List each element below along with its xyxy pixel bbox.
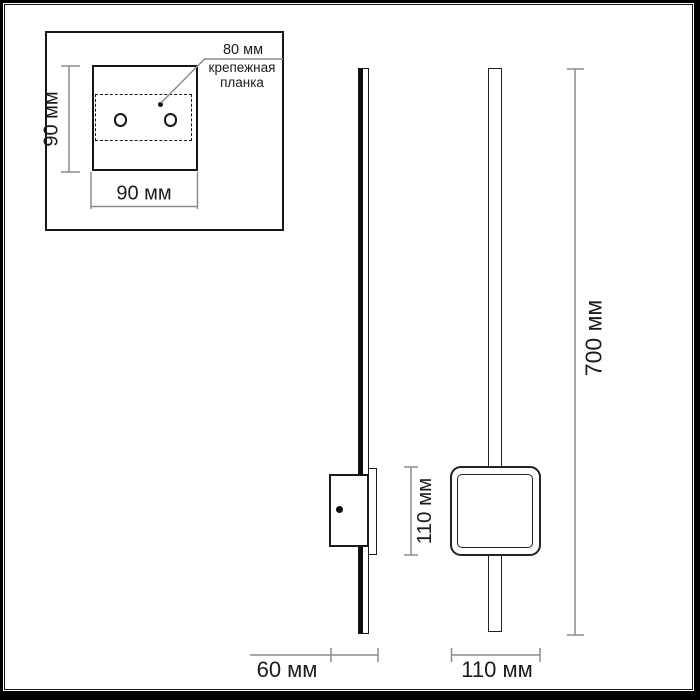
- depth-label: 60 мм: [257, 657, 318, 683]
- wall-plate-side-view: [368, 468, 377, 555]
- inset-height-label: 90 мм: [41, 91, 64, 146]
- front-width-label: 110 мм: [461, 657, 532, 683]
- mounting-hole-left: [114, 113, 128, 127]
- bracket-housing-side-view: [329, 474, 369, 547]
- bracket-screw: [336, 506, 343, 513]
- leader-anchor-dot: [158, 102, 164, 108]
- led-strip-profile: [359, 69, 363, 633]
- dimension-drawing: 80 мм крепежная планка 90 мм 90 мм 60 мм…: [0, 0, 700, 700]
- mount-plate-note-line1: крепежная: [209, 61, 276, 76]
- bracket-height-label: 110 мм: [413, 478, 437, 545]
- mount-plate-note-line2: планка: [209, 76, 276, 91]
- inset-width-label: 90 мм: [116, 183, 171, 206]
- mounting-bracket-dashed-outline: [95, 94, 192, 141]
- mounting-hole-right: [164, 113, 178, 127]
- mount-plate-note: крепежная планка: [209, 61, 276, 90]
- lamp-square-element-inner: [457, 474, 533, 549]
- total-height-label: 700 мм: [581, 300, 608, 376]
- lamp-side-view-bar: [358, 68, 369, 634]
- spacing-label: 80 мм: [223, 42, 263, 58]
